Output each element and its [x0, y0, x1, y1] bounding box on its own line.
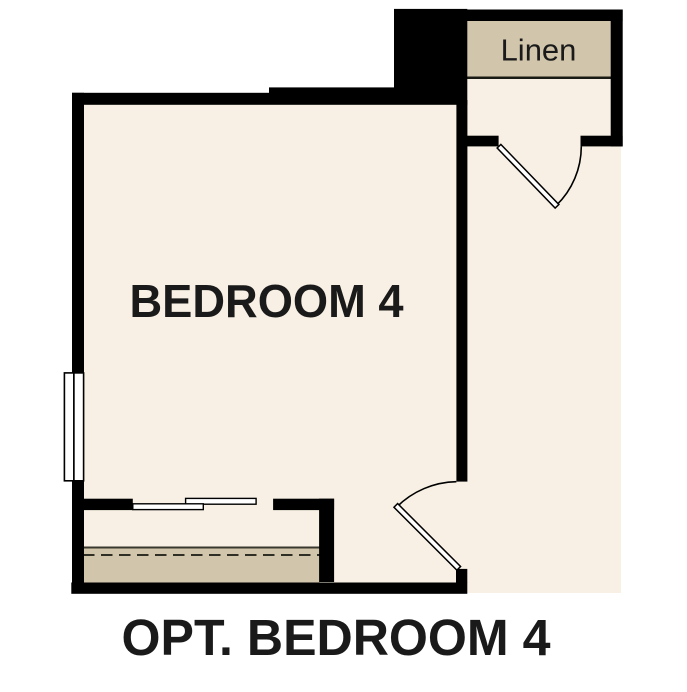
svg-text:BEDROOM 4: BEDROOM 4: [130, 275, 404, 327]
svg-text:OPT. BEDROOM 4: OPT. BEDROOM 4: [122, 609, 552, 666]
svg-text:Linen: Linen: [501, 33, 577, 68]
